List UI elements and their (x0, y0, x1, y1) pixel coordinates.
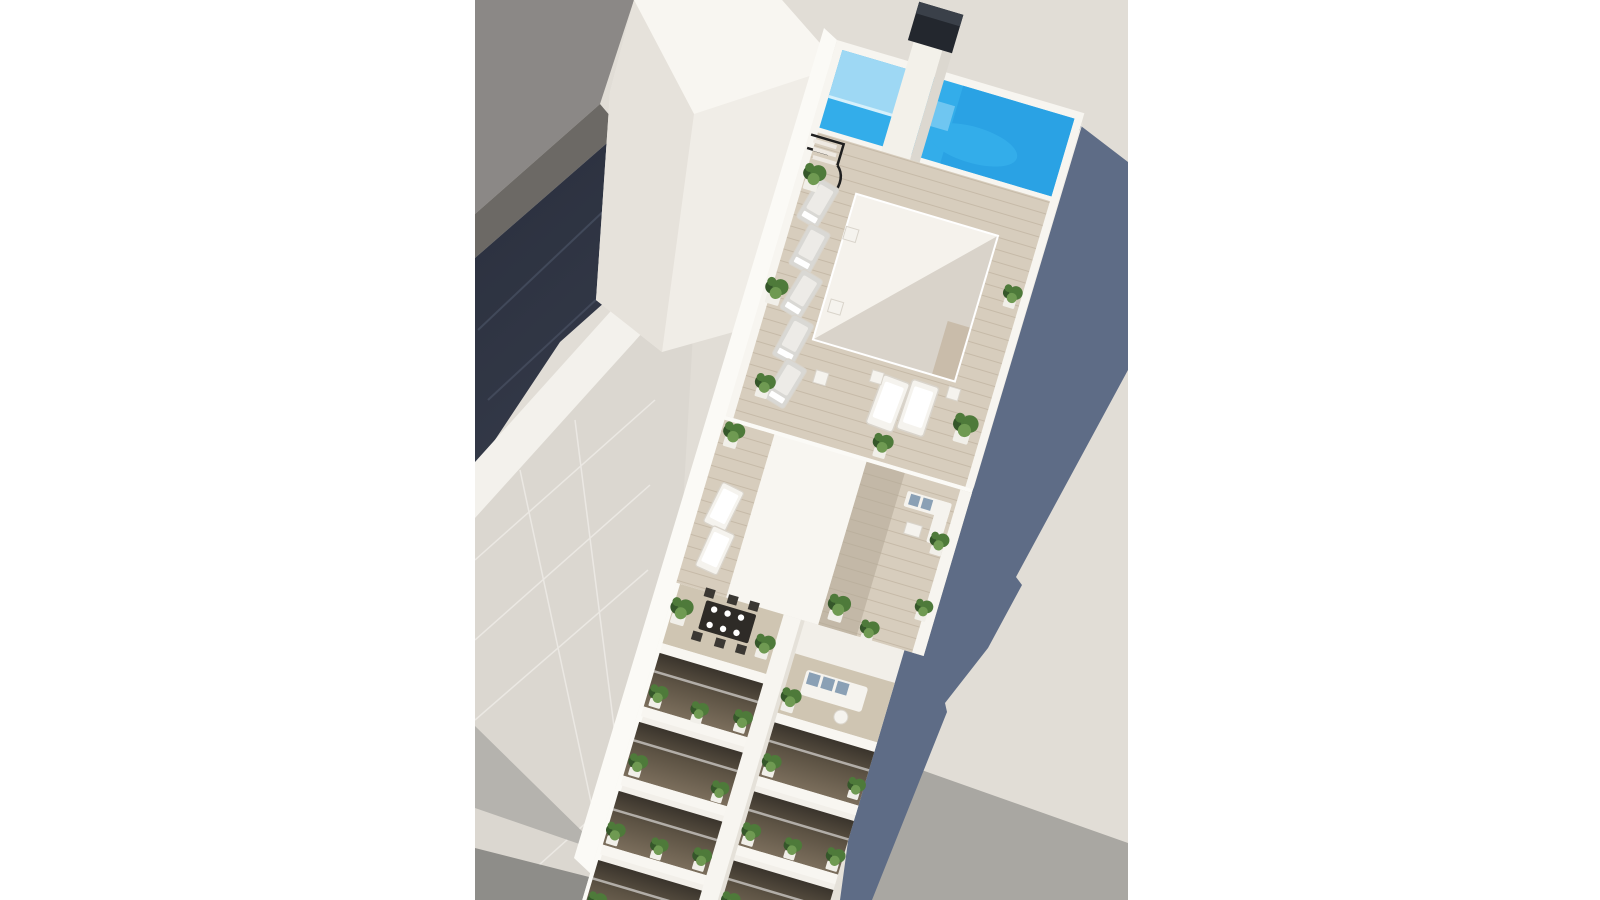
render-canvas (0, 0, 1600, 900)
architectural-render (0, 0, 1600, 900)
